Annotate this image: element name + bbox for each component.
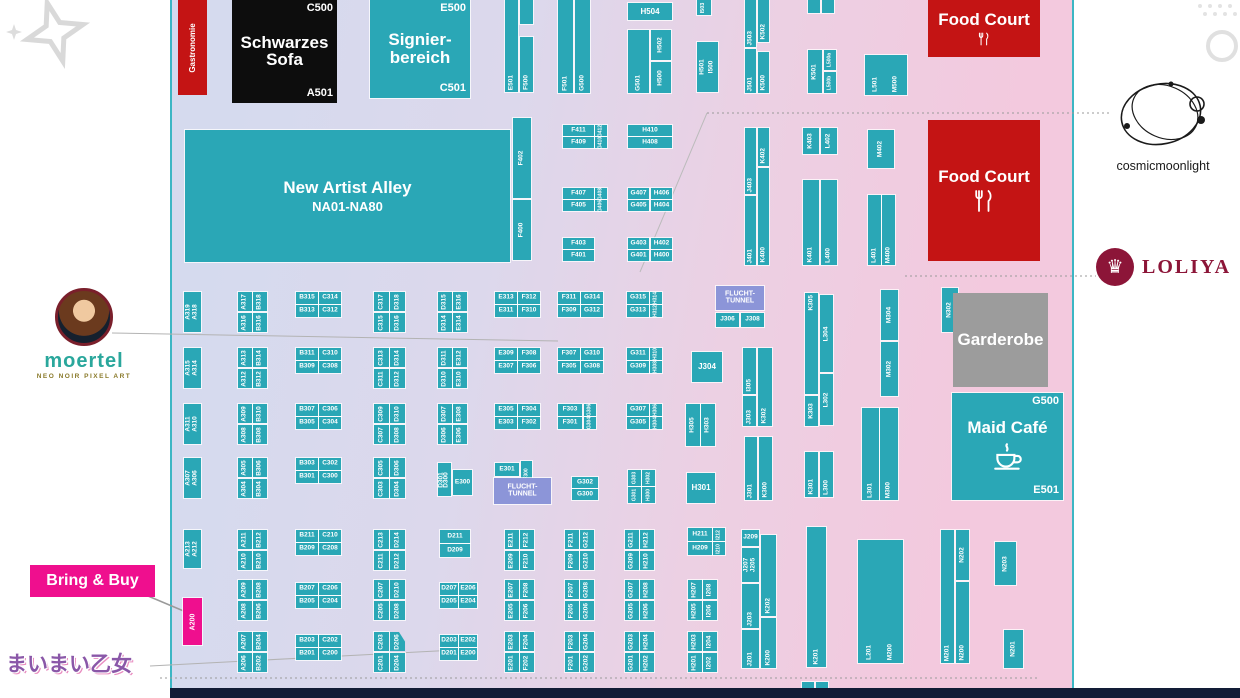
booth-c311: C311 xyxy=(374,369,389,388)
booth-d314: D314 xyxy=(438,313,452,332)
booth-label: E307 xyxy=(498,364,513,371)
booth-label: C315 xyxy=(378,315,385,331)
booth-label: D207 xyxy=(441,586,457,593)
booth-j301: J301 xyxy=(745,437,757,500)
cosmicmoonlight-logo: cosmicmoonlight xyxy=(1108,76,1218,173)
booth-label: A207 xyxy=(242,634,249,650)
booth-label: E310 xyxy=(457,371,464,386)
booth-f402: F402 xyxy=(513,118,531,198)
booth-g204: G204 xyxy=(580,632,594,651)
booth-f305: F305 xyxy=(558,361,580,373)
booth-e303: E303 xyxy=(495,417,517,429)
booth-label: J201 xyxy=(747,652,754,666)
booth-label: H301 xyxy=(691,484,710,492)
booth-label: L400 xyxy=(826,248,833,263)
booth-g314: G314 xyxy=(581,292,603,304)
booth-f210: F210 xyxy=(520,551,534,570)
booth-label: K501 xyxy=(812,64,819,80)
booth-e501: E501 xyxy=(505,0,518,92)
booth-g406: G406 xyxy=(595,200,607,211)
booth-label: A501 xyxy=(307,88,333,100)
booth-label: I208 xyxy=(707,583,714,596)
orbit-circles-icon xyxy=(1113,76,1213,152)
booth-f403: F403 xyxy=(563,238,594,249)
booth-label: I204 xyxy=(707,635,714,648)
booth-label: H212 xyxy=(644,532,651,548)
booth-h301: H301 xyxy=(687,473,715,503)
booth-label: H502 xyxy=(658,37,665,53)
booth-g315: G315 xyxy=(627,292,649,304)
booth-label: G303 xyxy=(632,472,637,484)
booth-a200: A200 xyxy=(183,598,202,645)
booth-e202: E202 xyxy=(459,635,477,647)
booth-label: F400 xyxy=(519,223,526,238)
booth-f312: F312 xyxy=(518,292,540,304)
booth-label: D300 xyxy=(444,472,451,488)
booth-d306: D306 xyxy=(438,425,452,444)
booth-label: G313 xyxy=(630,308,646,315)
booth-e204: E204 xyxy=(459,596,477,608)
booth-b308: B308 xyxy=(253,425,267,444)
booth-d214: D214 xyxy=(390,530,405,549)
booth-label: F211 xyxy=(569,532,576,546)
booth-label: J501 xyxy=(747,77,754,91)
booth-label: N200 xyxy=(959,645,966,661)
booth-label: NA01-NA80 xyxy=(312,200,383,214)
booth-h310: H310 xyxy=(650,348,662,360)
booth-g208: G208 xyxy=(580,580,594,599)
booth-label: H500 xyxy=(658,70,665,86)
booth-label: C306 xyxy=(322,407,338,414)
booth-label: H205 xyxy=(692,603,699,619)
booth-l301: L301 xyxy=(862,408,879,500)
booth-label: B312 xyxy=(257,371,264,387)
booth-label: D203 xyxy=(441,638,457,645)
booth-label: G408 xyxy=(598,187,603,199)
booth-label: B201 xyxy=(299,651,315,658)
booth-label: H312 xyxy=(653,305,658,317)
booth-label: C312 xyxy=(322,308,338,315)
booth-label: F209 xyxy=(569,553,576,568)
loliya-text: LOLIYA xyxy=(1142,256,1231,279)
booth-j207: J207J205 xyxy=(742,548,759,582)
bring-and-buy-label: Bring & Buy xyxy=(30,565,155,597)
booth-j209: J209 xyxy=(742,530,759,546)
booth-label: F312 xyxy=(522,295,537,302)
booth-label: B210 xyxy=(257,553,264,569)
booth-label: F210 xyxy=(524,553,531,568)
booth-g410: G410 xyxy=(595,137,607,148)
booth-f307: F307 xyxy=(558,348,580,360)
booth-b311: B311 xyxy=(296,348,318,360)
booth-label: M500 xyxy=(892,76,899,92)
booth-label: F203 xyxy=(569,634,576,649)
booth-c308: C308 xyxy=(319,361,341,373)
booth-k400: K400 xyxy=(758,168,769,265)
booth-b209: B209 xyxy=(296,543,318,555)
booth-h204: H204 xyxy=(640,632,654,651)
booth-f501: F501 xyxy=(558,0,573,93)
booth-f205: F205 xyxy=(565,601,579,620)
booth-f302: F302 xyxy=(518,417,540,429)
booth-label: B305 xyxy=(299,420,315,427)
booth-d311: D311 xyxy=(438,348,452,367)
booth-label: B204 xyxy=(257,634,264,650)
booth-l201: L201M200 xyxy=(858,540,903,663)
booth-b207: B207 xyxy=(296,583,318,595)
booth-label: D312 xyxy=(394,371,401,387)
booth-f207: F207 xyxy=(565,580,579,599)
bottom-bar xyxy=(170,688,1240,698)
booth-flucht--tunnel: FLUCHT- TUNNEL xyxy=(716,286,764,310)
booth-label: G406 xyxy=(598,199,603,211)
booth-g210: G210 xyxy=(580,551,594,570)
booth-label: A305 xyxy=(242,460,249,476)
booth-label: F401 xyxy=(571,252,586,259)
booth-label: H202 xyxy=(644,655,651,671)
booth-b303: B303 xyxy=(296,458,318,470)
booth-label: E316 xyxy=(457,294,464,309)
booth-k302: K302 xyxy=(758,348,772,426)
booth-label: B311 xyxy=(299,351,314,358)
booth-label: H303 xyxy=(705,417,712,433)
booth-label: F305 xyxy=(562,364,577,371)
booth-d212: D212 xyxy=(390,551,405,570)
booth-label: H211 xyxy=(692,531,707,538)
booth-label: K500 xyxy=(760,75,767,91)
booth-label: I212 xyxy=(716,530,721,540)
booth-a210: A210 xyxy=(238,551,252,570)
booth-m400: M400 xyxy=(882,195,895,265)
booth-label: H406 xyxy=(654,190,670,197)
booth-label: C300 xyxy=(322,474,338,481)
booth-label: G407 xyxy=(631,190,647,197)
booth-h402: H402 xyxy=(651,238,672,249)
circle-decoration xyxy=(1208,32,1236,60)
booth-label: C210 xyxy=(322,533,338,540)
girl-avatar-icon xyxy=(55,288,113,346)
booth-b312: B312 xyxy=(253,369,267,388)
booth-label: Food Court xyxy=(938,11,1030,29)
booth-d310: D310 xyxy=(390,404,405,423)
booth-label: C308 xyxy=(322,364,338,371)
booth-g309: G309 xyxy=(627,361,649,373)
booth-label: J203 xyxy=(747,612,754,626)
booth-k305: K305 xyxy=(805,293,818,394)
booth-k402: K402 xyxy=(758,128,769,166)
moertel-tagline: NEO NOIR PIXEL ART xyxy=(24,373,144,380)
booth-a308: A308 xyxy=(238,425,252,444)
maimai-otome-text: まいまい乙女 xyxy=(6,653,132,676)
booth-label: L201 xyxy=(867,645,874,660)
booth-label: A317 xyxy=(242,294,249,310)
booth-label: D310 xyxy=(442,371,449,387)
booth-label: M300 xyxy=(886,482,893,498)
booth-label: G405 xyxy=(631,202,647,209)
booth-label: B212 xyxy=(257,532,264,548)
booth-h302: H302 xyxy=(642,470,655,486)
booth-label: C302 xyxy=(322,461,338,468)
booth-h408: H408 xyxy=(628,137,672,148)
booth-g500: G500Maid CaféE501 xyxy=(952,393,1063,500)
booth-label: E202 xyxy=(460,638,475,645)
booth-g201: G201 xyxy=(625,653,639,672)
booth-c304: C304 xyxy=(319,417,341,429)
booth-j303: J303 xyxy=(743,396,756,426)
booth-label: F205 xyxy=(569,603,576,618)
booth-label: E313 xyxy=(498,295,513,302)
booth-f306: F306 xyxy=(518,361,540,373)
booth-label: D214 xyxy=(394,532,401,548)
booth-c205: C205 xyxy=(374,601,389,620)
booth-label: B211 xyxy=(299,533,314,540)
booth-b204: B204 xyxy=(253,632,267,651)
booth-label: G307 xyxy=(630,407,646,414)
booth-c315: C315 xyxy=(374,313,389,332)
booth-label: E300 xyxy=(455,479,470,486)
booth-f304: F304 xyxy=(518,404,540,416)
booth-label: B203 xyxy=(299,638,315,645)
booth-label: H501 xyxy=(699,59,706,75)
booth-l500b: L500b xyxy=(824,72,836,93)
booth-label: F306 xyxy=(522,364,537,371)
booth-l304: L304 xyxy=(820,295,833,372)
booth-label: D208 xyxy=(394,603,401,619)
booth-m201: M201 xyxy=(941,530,954,663)
booth-label: G203 xyxy=(629,634,636,650)
booth-label: G308 xyxy=(584,364,600,371)
booth-label: H210 xyxy=(644,553,651,569)
booth-label: D314 xyxy=(394,350,401,366)
booth-label: C206 xyxy=(322,586,338,593)
booth-label: B207 xyxy=(299,586,315,593)
booth-label: C303 xyxy=(378,481,385,497)
booth-m402: M402 xyxy=(868,130,894,168)
booth-f209: F209 xyxy=(565,551,579,570)
booth-label: C201 xyxy=(378,655,385,671)
booth-label: E314 xyxy=(457,315,464,330)
booth-g306: G306 xyxy=(584,404,596,416)
booth-h502: H502 xyxy=(651,30,671,60)
booth-f400: F400 xyxy=(513,200,531,260)
booth-d208: D208 xyxy=(390,601,405,620)
booth-label: E306 xyxy=(457,427,464,442)
booth-label: A210 xyxy=(242,553,249,569)
booth-label: B304 xyxy=(257,481,264,497)
sparkle-icon xyxy=(19,0,91,68)
booth-label: F500 xyxy=(523,75,530,90)
booth-block xyxy=(822,0,834,13)
booth-label: G212 xyxy=(584,532,591,548)
booth-g207: G207 xyxy=(625,580,639,599)
booth-label: I210 xyxy=(716,544,721,554)
booth-g302: G302 xyxy=(572,477,598,488)
booth-label: J308 xyxy=(745,317,759,324)
booth-label: D306 xyxy=(394,460,401,476)
booth-label: F405 xyxy=(571,202,586,209)
booth-label: B308 xyxy=(257,427,264,443)
booth-a211: A211 xyxy=(238,530,252,549)
booth-label: B314 xyxy=(257,350,264,366)
booth-label: C304 xyxy=(322,420,338,427)
booth-label: A319 xyxy=(185,304,192,320)
booth-label: G311 xyxy=(630,351,646,358)
booth-label: B318 xyxy=(257,294,264,310)
booth-label: B306 xyxy=(257,460,264,476)
booth-label: B209 xyxy=(299,546,315,553)
booth-label: A209 xyxy=(242,582,249,598)
booth-label: I206 xyxy=(707,604,714,617)
booth-label: A318 xyxy=(193,304,200,320)
booth-label: B202 xyxy=(257,655,264,671)
booth-label: A313 xyxy=(242,350,249,366)
booth-label: H201 xyxy=(692,655,699,671)
booth-e300: E300 xyxy=(453,470,472,495)
booth-g412: G412 xyxy=(595,125,607,136)
booth-h306: H306 xyxy=(650,404,662,416)
booth-d207: D207 xyxy=(440,583,458,595)
booth-b310: B310 xyxy=(253,404,267,423)
booth-j403: J403 xyxy=(745,128,756,194)
booth-d205: D205 xyxy=(440,596,458,608)
booth-label: C213 xyxy=(378,532,385,548)
booth-n202: N202 xyxy=(956,530,969,580)
booth-a316: A316 xyxy=(238,313,252,332)
sparkle-icon xyxy=(6,24,22,40)
booth-b304: B304 xyxy=(253,479,267,498)
booth-label: H402 xyxy=(654,240,670,247)
booth-label: D201 xyxy=(441,651,457,658)
booth-b210: B210 xyxy=(253,551,267,570)
booth-c208: C208 xyxy=(319,543,341,555)
booth-a317: A317 xyxy=(238,292,252,311)
booth-k501: K501 xyxy=(808,50,822,93)
booth-label: E501 xyxy=(508,75,515,90)
booth-g305: G305 xyxy=(627,417,649,429)
booth-label: I202 xyxy=(707,656,714,669)
booth-label: J209 xyxy=(743,535,757,542)
booth-c206: C206 xyxy=(319,583,341,595)
booth-label: D211 xyxy=(447,533,462,540)
booth-h500: H500 xyxy=(651,62,671,93)
booth-i503: I503 xyxy=(697,0,711,15)
booth-f500: F500 xyxy=(520,37,533,92)
booth-label: D308 xyxy=(394,427,401,443)
booth-c302: C302 xyxy=(319,458,341,470)
booth-b208: B208 xyxy=(253,580,267,599)
booth-c203: C203 xyxy=(374,632,389,651)
booth-label: A316 xyxy=(242,315,249,331)
booth-k200: K200 xyxy=(761,618,776,668)
booth-h404: H404 xyxy=(651,200,672,211)
booth-c210: C210 xyxy=(319,530,341,542)
utensils-icon xyxy=(972,189,996,213)
booth-label: B309 xyxy=(299,364,315,371)
booth-e209: E209 xyxy=(505,551,519,570)
booth-label: H209 xyxy=(692,545,708,552)
booth-g206: G206 xyxy=(580,601,594,620)
booth-c200: C200 xyxy=(319,648,341,660)
booth-label: J207 xyxy=(743,558,750,572)
booth-label: D316 xyxy=(394,315,401,331)
booth-b313: B313 xyxy=(296,305,318,317)
booth-f401: F401 xyxy=(563,250,594,261)
booth-label: E206 xyxy=(460,586,475,593)
booth-label: I500 xyxy=(709,61,716,74)
booth-label: E205 xyxy=(509,603,516,618)
booth-label: F207 xyxy=(569,582,576,597)
booth-label: K403 xyxy=(808,133,815,149)
booth-label: E500 xyxy=(440,3,466,15)
booth-d304: D304 xyxy=(390,479,405,498)
booth-j306: J306 xyxy=(716,313,739,327)
booth-f301: F301 xyxy=(558,417,582,429)
moertel-logo: moertel NEO NOIR PIXEL ART xyxy=(24,288,144,380)
booth-label: G401 xyxy=(631,252,647,259)
booth-label: L500b xyxy=(827,75,832,89)
booth-g303: G303 xyxy=(628,470,641,486)
booth-g300: G300 xyxy=(572,489,598,500)
booth-g202: G202 xyxy=(580,653,594,672)
booth-a319: A319A318 xyxy=(184,292,201,332)
booth-h211: H211 xyxy=(688,528,712,541)
booth-a311: A311A310 xyxy=(184,404,201,444)
booth-label: H304 xyxy=(653,417,658,429)
booth-e305: E305 xyxy=(495,404,517,416)
booth-b202: B202 xyxy=(253,653,267,672)
booth-a207: A207 xyxy=(238,632,252,651)
booth-label: L302 xyxy=(823,392,830,407)
booth-h205: H205 xyxy=(688,601,702,620)
booth-label: E301 xyxy=(499,466,514,473)
booth-l501: L501M500 xyxy=(865,55,907,95)
booth-l302: L302 xyxy=(820,374,833,425)
booth-label: D310 xyxy=(394,406,401,422)
booth-label: D304 xyxy=(394,481,401,497)
booth-label: C305 xyxy=(378,460,385,476)
booth-label: G315 xyxy=(630,295,646,302)
booth-label: Signier- bereich xyxy=(388,31,451,67)
booth-label: F411 xyxy=(571,127,585,134)
booth-label: E305 xyxy=(498,407,513,414)
booth-a312: A312 xyxy=(238,369,252,388)
booth-label: J303 xyxy=(746,410,753,424)
booth-label: F301 xyxy=(563,420,578,427)
booth-food-court: Food Court xyxy=(928,120,1040,261)
booth-label: M302 xyxy=(886,361,893,377)
loliya-logo: ♛ LOLIYA xyxy=(1096,248,1231,286)
booth-label: B303 xyxy=(299,461,315,468)
booth-g405: G405 xyxy=(628,200,649,211)
booth-c312: C312 xyxy=(319,305,341,317)
booth-label: G208 xyxy=(584,582,591,598)
booth-label: E203 xyxy=(509,634,516,649)
booth-food-court: Food Court xyxy=(928,0,1040,57)
booth-i305: I305 xyxy=(743,348,756,394)
booth-c313: C313 xyxy=(374,348,389,367)
booth-label: J503 xyxy=(747,31,754,45)
booth-label: K200 xyxy=(765,650,772,666)
booth-a313: A313 xyxy=(238,348,252,367)
booth-label: L304 xyxy=(823,326,830,341)
booth-label: D212 xyxy=(394,553,401,569)
booth-label: A309 xyxy=(242,406,249,422)
booth-c317: C317 xyxy=(374,292,389,311)
booth-label: F402 xyxy=(519,151,526,166)
booth-j203: J203 xyxy=(742,584,759,628)
booth-c310: C310 xyxy=(319,348,341,360)
booth-label: G305 xyxy=(630,420,646,427)
